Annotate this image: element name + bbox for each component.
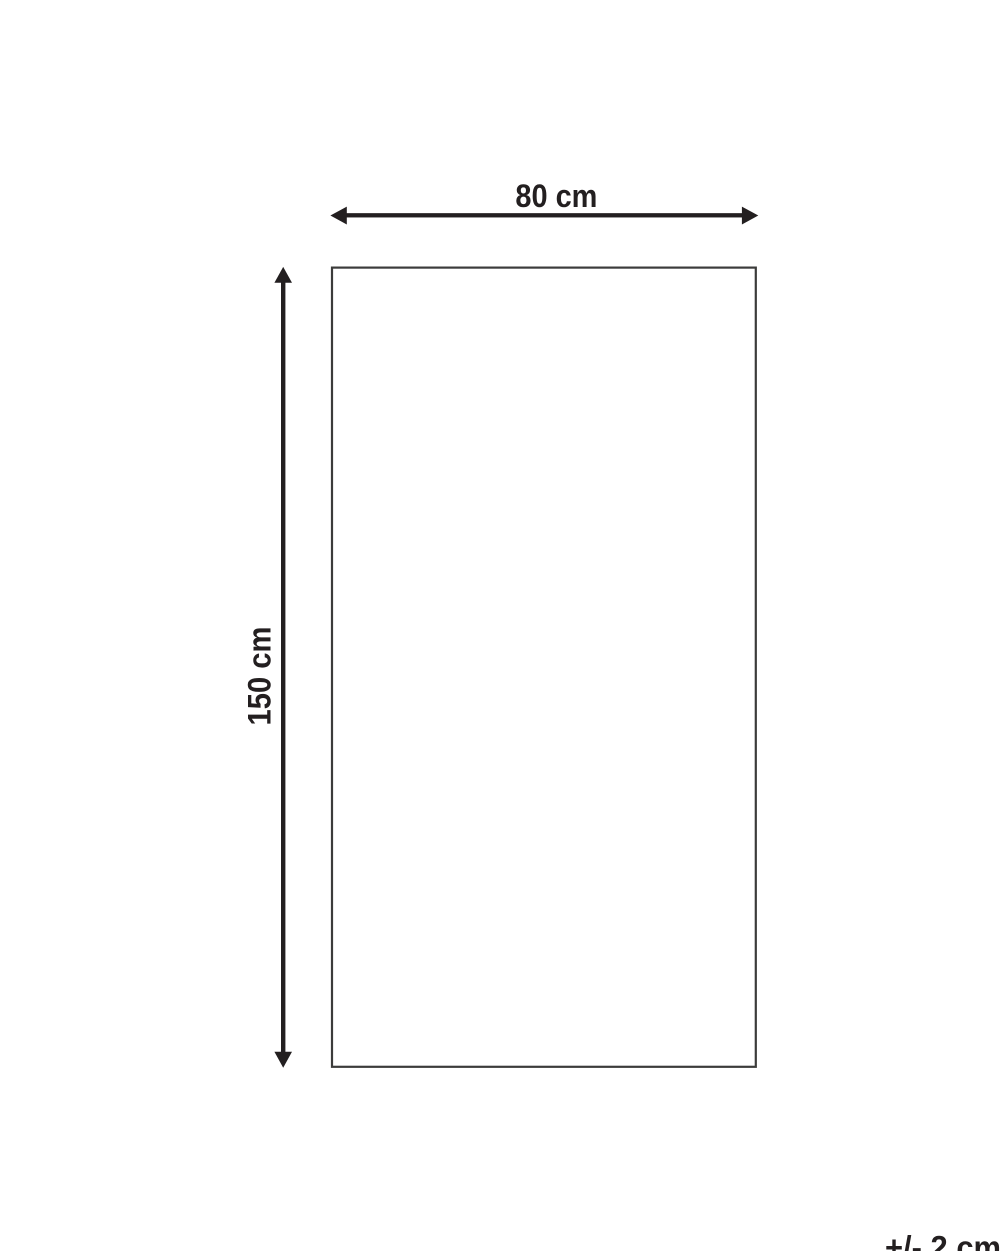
svg-text:150 cm: 150 cm [242, 627, 278, 726]
svg-text:+/- 2 cm: +/- 2 cm [885, 1230, 1000, 1251]
svg-text:80 cm: 80 cm [515, 178, 597, 214]
